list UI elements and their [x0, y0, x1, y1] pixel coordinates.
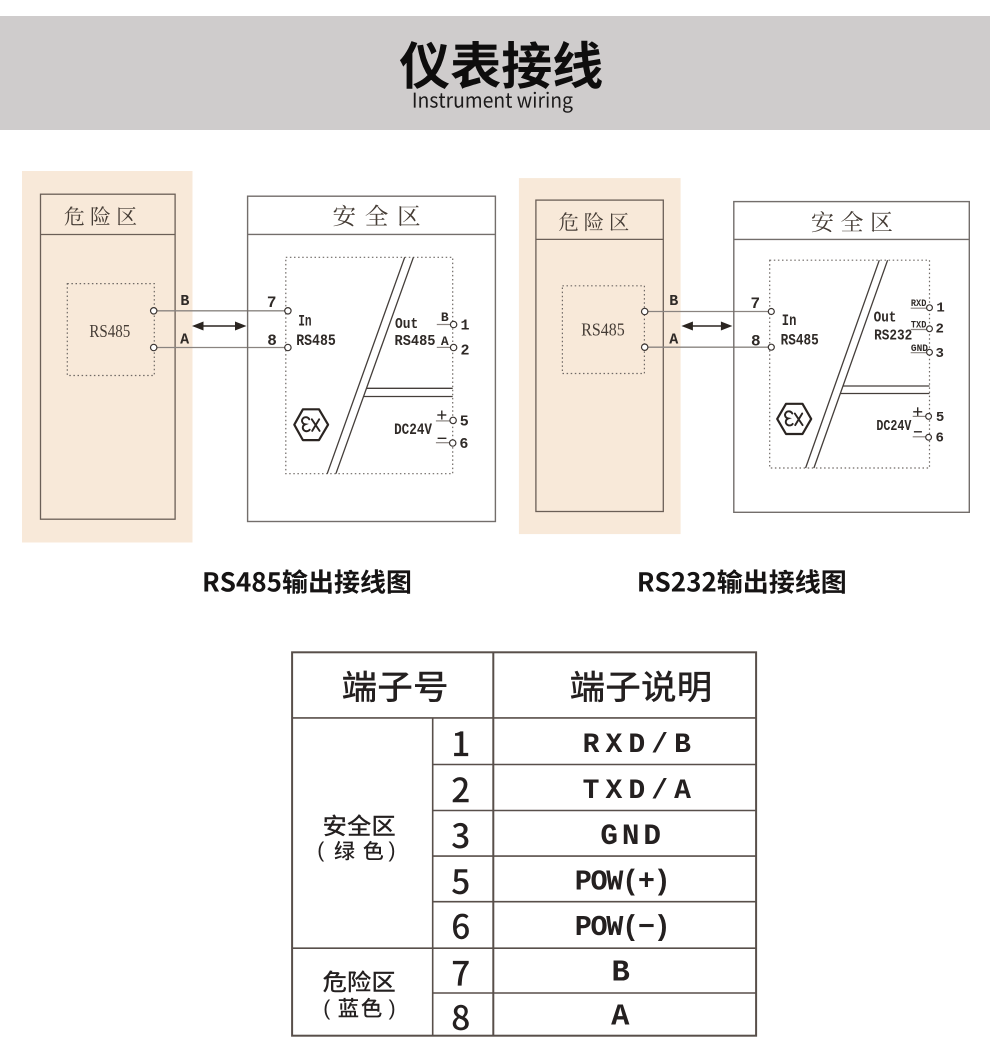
svg-text:RXD/B: RXD/B: [583, 730, 691, 761]
svg-text:RS485: RS485: [395, 333, 436, 350]
svg-text:6: 6: [459, 436, 468, 453]
svg-text:7: 7: [267, 294, 277, 312]
svg-text:B: B: [669, 293, 678, 310]
svg-text:A: A: [180, 332, 189, 349]
svg-text:(: (: [323, 997, 330, 1020]
svg-text:RS485: RS485: [296, 332, 336, 350]
svg-text:5: 5: [936, 410, 944, 426]
svg-text:A: A: [441, 334, 449, 349]
svg-text:(: (: [317, 839, 324, 862]
svg-text:RS232: RS232: [874, 329, 912, 345]
svg-text:): ): [389, 997, 396, 1020]
svg-text:2: 2: [461, 343, 470, 360]
svg-text:7: 7: [751, 295, 761, 313]
svg-text:1: 1: [936, 301, 944, 317]
svg-text:RS485: RS485: [781, 332, 819, 350]
svg-text:Out: Out: [395, 316, 418, 333]
svg-text:A: A: [611, 1000, 630, 1034]
svg-text:1: 1: [461, 318, 470, 335]
svg-text:In: In: [298, 312, 311, 330]
svg-text:5: 5: [460, 413, 469, 430]
svg-text:2: 2: [936, 322, 944, 338]
svg-text:RS485: RS485: [581, 320, 624, 340]
svg-text:B: B: [612, 957, 630, 991]
svg-text:POW(−): POW(−): [575, 911, 671, 944]
svg-text:8: 8: [267, 332, 277, 350]
svg-text:DC24V: DC24V: [394, 421, 432, 439]
svg-text:B: B: [180, 293, 189, 310]
svg-text:B: B: [441, 310, 449, 325]
svg-text:Out: Out: [874, 311, 897, 327]
svg-text:POW(+): POW(+): [575, 866, 671, 899]
svg-text:3: 3: [936, 346, 944, 362]
svg-text:TXD/A: TXD/A: [583, 776, 691, 807]
svg-text:): ): [389, 839, 396, 862]
svg-text:DC24V: DC24V: [876, 419, 911, 435]
svg-text:RS485: RS485: [89, 321, 130, 341]
svg-text:6: 6: [936, 430, 944, 446]
svg-text:In: In: [782, 312, 797, 330]
svg-text:GND: GND: [600, 820, 661, 853]
svg-text:A: A: [669, 332, 678, 349]
svg-text:8: 8: [751, 333, 761, 351]
